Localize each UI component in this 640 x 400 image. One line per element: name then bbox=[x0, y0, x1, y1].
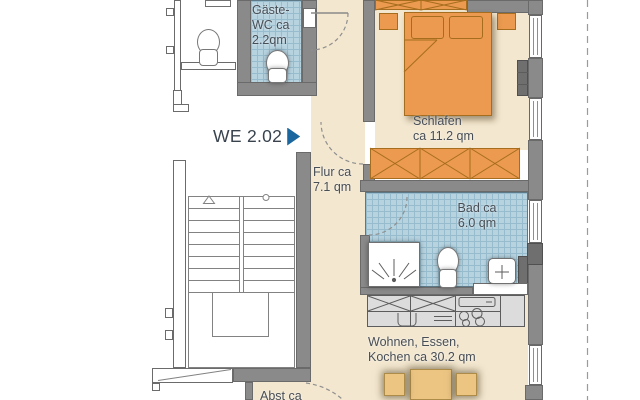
room-label-abstell: Abst ca bbox=[260, 389, 302, 400]
room-label-schlafen: Schlafen ca 11.2 qm bbox=[413, 114, 474, 144]
room-label-bad: Bad ca 6.0 qm bbox=[441, 201, 513, 231]
toilet bbox=[268, 68, 287, 83]
wall bbox=[363, 0, 375, 122]
nightstand bbox=[497, 13, 516, 30]
wall bbox=[528, 140, 543, 200]
entry-landing bbox=[152, 368, 233, 383]
unit-label: WE 2.02 bbox=[213, 126, 300, 147]
label-line: ca 11.2 qm bbox=[413, 129, 474, 144]
wall-outline bbox=[165, 330, 173, 340]
window bbox=[529, 345, 542, 385]
unit-label-text: WE 2.02 bbox=[213, 126, 282, 147]
bath-vanity bbox=[473, 283, 528, 295]
chair bbox=[456, 373, 477, 396]
wall bbox=[296, 152, 311, 368]
wall-outline bbox=[166, 8, 174, 16]
wall bbox=[527, 243, 543, 265]
label-line: Bad ca bbox=[441, 201, 513, 216]
shower bbox=[368, 242, 420, 287]
wardrobe-top bbox=[375, 0, 467, 10]
wall bbox=[525, 385, 543, 400]
wall-outline bbox=[152, 383, 160, 391]
wall bbox=[528, 0, 543, 15]
label-line: Abst ca bbox=[260, 389, 302, 400]
chair bbox=[384, 373, 405, 396]
window bbox=[529, 15, 542, 58]
label-line: Schlafen bbox=[413, 114, 474, 129]
wall-outline bbox=[174, 0, 181, 93]
label-line: 2.2qm bbox=[252, 33, 290, 48]
wall bbox=[233, 368, 311, 382]
unit-arrow-icon bbox=[287, 128, 300, 146]
wall-outline bbox=[173, 104, 189, 112]
wall bbox=[245, 382, 253, 400]
wall-niche bbox=[303, 8, 316, 28]
window bbox=[529, 98, 542, 140]
sink bbox=[488, 258, 516, 284]
washbasin bbox=[205, 0, 231, 7]
floor-plan: Gäste- WC ca 2.2qm WE 2.02 Flur ca 7.1 q… bbox=[0, 0, 640, 400]
nightstand bbox=[379, 13, 398, 30]
label-line: Wohnen, Essen, bbox=[368, 335, 476, 350]
label-line: WC ca bbox=[252, 18, 290, 33]
wall-pillar bbox=[517, 60, 528, 96]
wall-outline bbox=[165, 308, 173, 318]
label-line: 7.1 qm bbox=[313, 180, 351, 195]
label-line: 6.0 qm bbox=[441, 216, 513, 231]
room-label-flur: Flur ca 7.1 qm bbox=[313, 165, 351, 195]
window bbox=[529, 200, 542, 243]
wall bbox=[237, 82, 317, 96]
stair-post-icon bbox=[263, 195, 269, 201]
dining-table bbox=[410, 369, 452, 400]
room-label-wohnen: Wohnen, Essen, Kochen ca 30.2 qm bbox=[368, 335, 476, 365]
wall bbox=[528, 58, 543, 98]
label-line: Flur ca bbox=[313, 165, 351, 180]
label-line: Gäste- bbox=[252, 3, 290, 18]
wall-outline bbox=[173, 160, 186, 368]
room-label-gaeste-wc: Gäste- WC ca 2.2qm bbox=[252, 3, 290, 48]
pillow bbox=[449, 16, 483, 39]
wall bbox=[360, 180, 530, 192]
flur-floor bbox=[311, 0, 365, 295]
wall-outline bbox=[166, 46, 174, 54]
stair-up-arrow-icon bbox=[204, 196, 215, 204]
toilet bbox=[199, 49, 218, 66]
label-line: Kochen ca 30.2 qm bbox=[368, 350, 476, 365]
toilet bbox=[439, 269, 457, 288]
wall bbox=[360, 287, 473, 295]
pillow bbox=[411, 16, 444, 39]
kitchen-counter bbox=[367, 295, 525, 327]
wardrobe bbox=[370, 148, 520, 179]
